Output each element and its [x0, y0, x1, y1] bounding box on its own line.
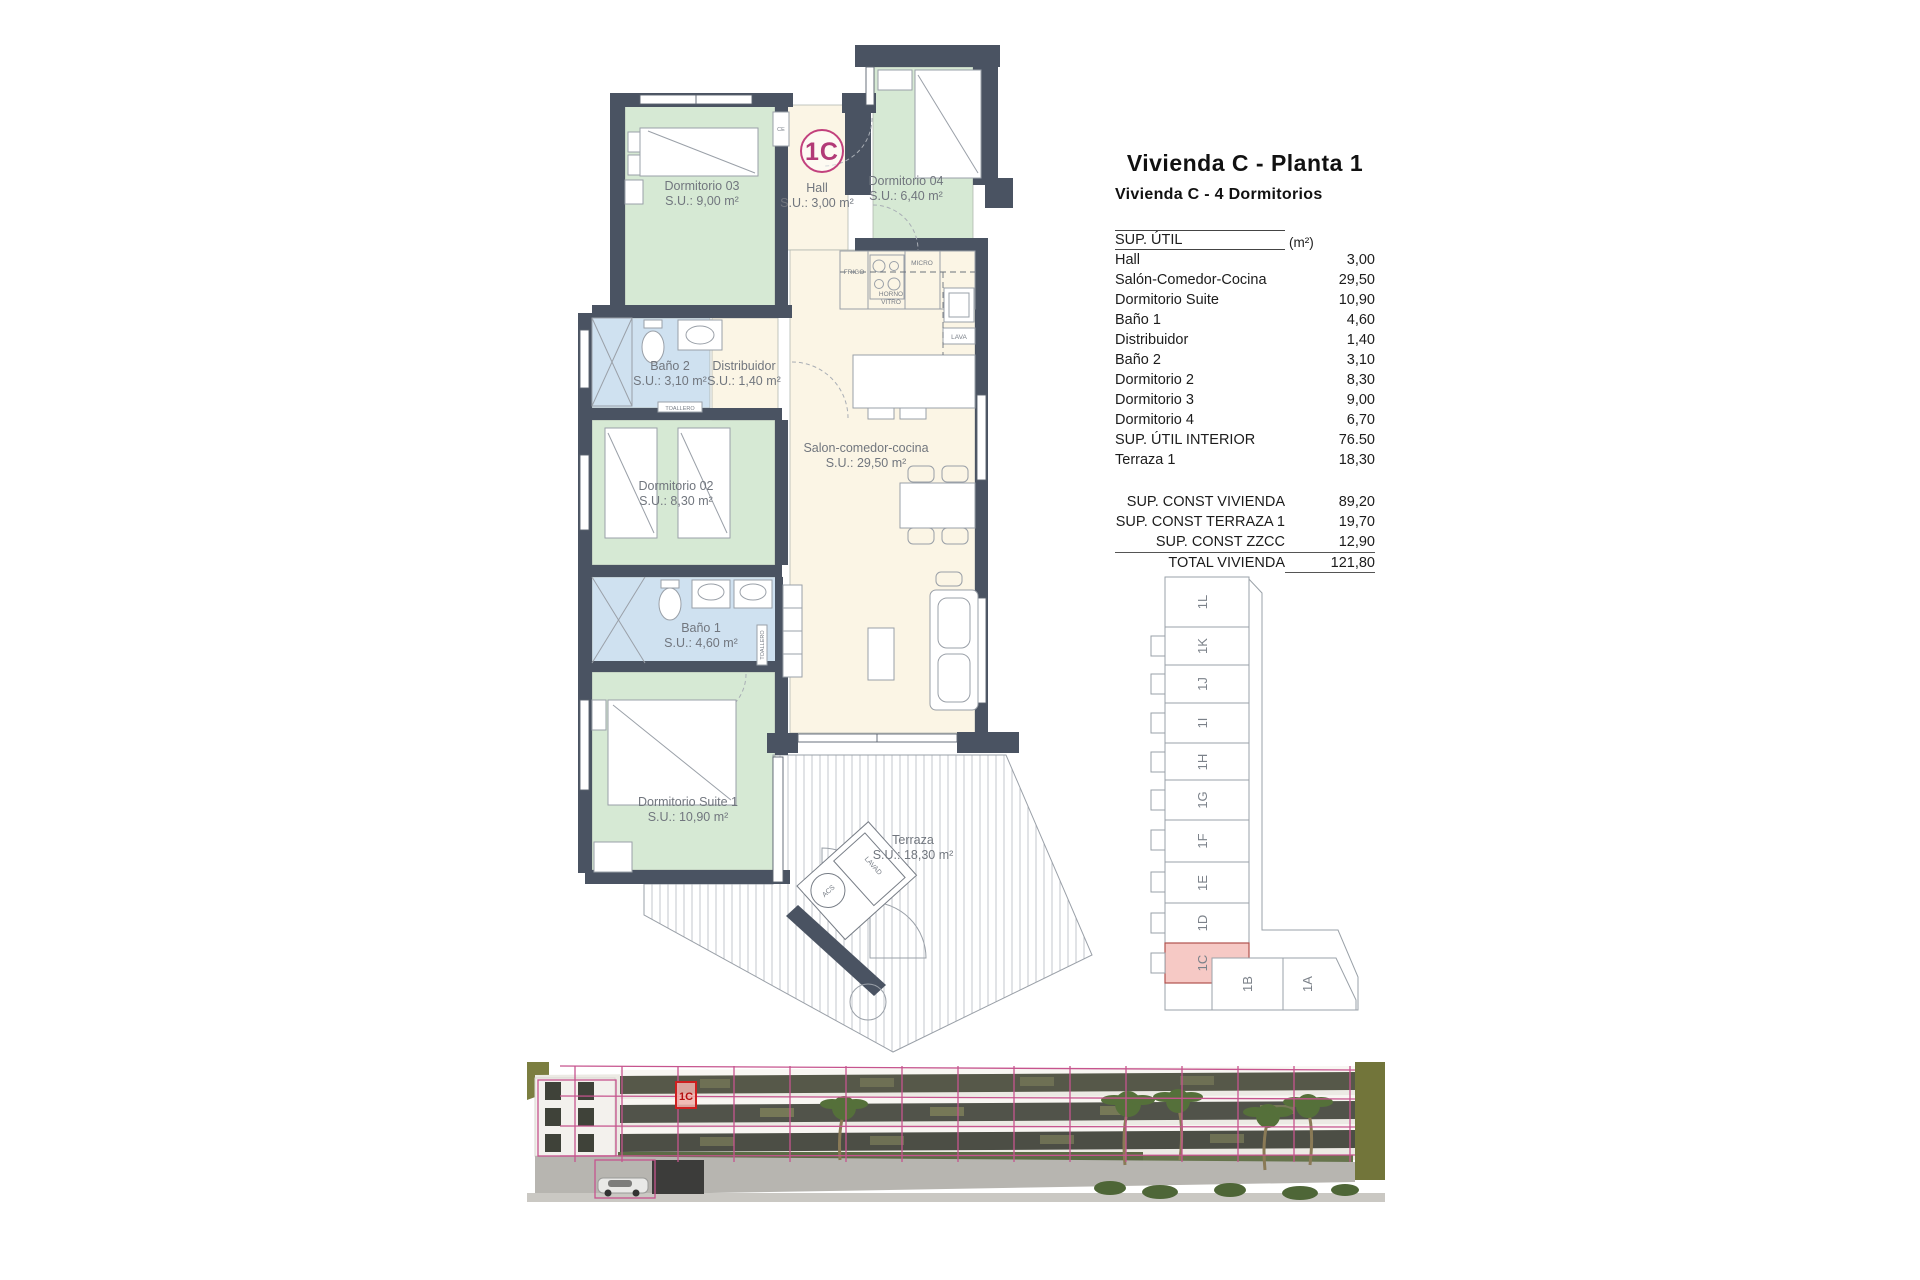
key-label-1f: 1F [1195, 833, 1210, 848]
horno-label-2: VITRO [881, 299, 901, 306]
label-salon: Salon-comedor-cocina [803, 441, 928, 455]
horno-label-1: HORNO [879, 291, 903, 298]
label-dormitorio-04-area: S.U.: 6,40 m² [869, 189, 943, 203]
label-salon-area: S.U.: 29,50 m² [826, 456, 907, 470]
label-dormitorio-03-area: S.U.: 9,00 m² [665, 194, 739, 208]
label-terraza-area: S.U.: 18,30 m² [873, 848, 954, 862]
key-label-1e: 1E [1195, 875, 1210, 891]
toallero-label: TOALLERO [665, 406, 695, 412]
label-distribuidor-area: S.U.: 1,40 m² [707, 374, 781, 388]
key-plan-cells [1151, 577, 1356, 1010]
key-label-1g: 1G [1195, 791, 1210, 808]
ce-label: CE [777, 127, 785, 133]
key-label-1h: 1H [1195, 754, 1210, 771]
label-bano-2: Baño 2 [650, 359, 690, 373]
lava-label: LAVA [951, 334, 967, 341]
room-hall [786, 105, 848, 250]
drawing-canvas: ACS LAVAD 1C Dormitorio 03 S.U.: 9,00 m²… [0, 0, 1920, 1280]
label-suite: Dormitorio Suite 1 [638, 795, 738, 809]
key-label-1b: 1B [1240, 976, 1255, 992]
unit-badge: 1C [801, 130, 843, 172]
label-hall-area: S.U.: 3,00 m² [780, 196, 854, 210]
label-dormitorio-03: Dormitorio 03 [664, 179, 739, 193]
render-highlight-label: 1C [679, 1091, 693, 1103]
key-label-1a: 1A [1300, 976, 1315, 992]
label-terraza: Terraza [892, 833, 934, 847]
label-distribuidor: Distribuidor [712, 359, 775, 373]
label-suite-area: S.U.: 10,90 m² [648, 810, 729, 824]
label-dormitorio-04: Dormitorio 04 [868, 174, 943, 188]
key-plan: 1L 1K 1J 1I 1H 1G 1F 1E 1D 1C 1B 1A [1151, 577, 1358, 1010]
unit-badge-label: 1C [805, 138, 839, 166]
render-road [527, 1193, 1385, 1202]
frigo-label: FRIGO [844, 269, 865, 276]
render-highlight-unit: 1C [676, 1082, 696, 1108]
label-bano-1-area: S.U.: 4,60 m² [664, 636, 738, 650]
render-garage [652, 1160, 704, 1194]
label-hall: Hall [806, 181, 828, 195]
label-dormitorio-02-area: S.U.: 8,30 m² [639, 494, 713, 508]
key-label-1c: 1C [1195, 955, 1210, 972]
label-bano-2-area: S.U.: 3,10 m² [633, 374, 707, 388]
key-label-1l: 1L [1195, 595, 1210, 609]
micro-label: MICRO [911, 260, 933, 267]
render-floor-bands [620, 1066, 1355, 1152]
label-bano-1: Baño 1 [681, 621, 721, 635]
key-cell-1a [1283, 958, 1356, 1010]
render-green-right [1355, 1062, 1385, 1180]
key-label-1j: 1J [1195, 677, 1210, 691]
key-label-1d: 1D [1195, 915, 1210, 932]
label-dormitorio-02: Dormitorio 02 [638, 479, 713, 493]
key-label-1i: 1I [1195, 718, 1210, 729]
building-render: 1C [527, 1062, 1385, 1202]
plan-sheet: Vivienda C - Planta 1 Vivienda C - 4 Dor… [0, 0, 1920, 1280]
key-label-1k: 1K [1195, 638, 1210, 654]
floor-plan: ACS LAVAD 1C Dormitorio 03 S.U.: 9,00 m²… [578, 45, 1092, 1052]
toallero-label-2: TOALLERO [760, 630, 766, 660]
